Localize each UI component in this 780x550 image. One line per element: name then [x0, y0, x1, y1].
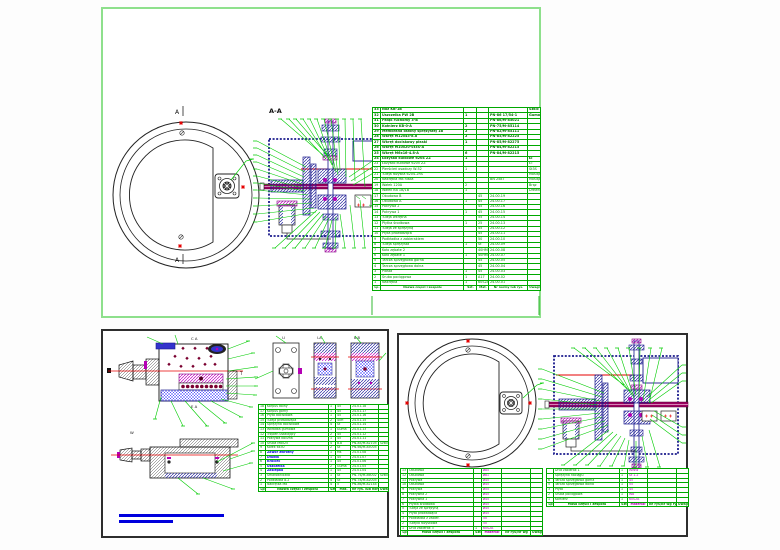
- sheet-bottom-right[interactable]: 13Obudowaø8512Obudowaø8111Pokrywaø4510Ob…: [397, 333, 688, 537]
- plate-view: I-I: [273, 336, 302, 398]
- label-view2: B-B: [354, 336, 361, 340]
- sheet-bottom-left[interactable]: C A T E A: [101, 329, 389, 538]
- revision-bars: [119, 514, 224, 523]
- label-bottom: E A: [191, 404, 198, 409]
- section-title: A-A: [269, 107, 282, 115]
- bottom-left-parts-table: 18Korpus dolny14524.01.1817Korpus górny1…: [258, 404, 388, 492]
- bottom-right-right-table: Drut zabierak 11WWWSprężyna naciągu1St 1…: [546, 468, 688, 507]
- flange-front-view: [405, 339, 543, 467]
- cut-label-top: A: [175, 109, 180, 116]
- label-plate: I-I: [282, 336, 285, 340]
- section-view: [545, 339, 688, 470]
- sheet-top[interactable]: A A A-A: [101, 7, 541, 318]
- label-w: W: [130, 430, 134, 435]
- label-t: T: [239, 371, 243, 376]
- bottom-right-left-table: 13Obudowaø8512Obudowaø8111Pokrywaø4510Ob…: [400, 468, 542, 536]
- side-section-view: W: [111, 430, 238, 478]
- clamp-section-view: C A T E A: [107, 336, 243, 409]
- drawing-canvas: { "colors":{"cad_green":"#00b400","navy"…: [0, 0, 780, 550]
- top-parts-table: 33Nóż KB-1BSzkic32Uszczelka PW 2B1PN-86 …: [372, 107, 541, 291]
- flange-front-view: A A: [113, 106, 259, 268]
- strip-section-2: B-B: [348, 336, 382, 398]
- label-top: C A: [191, 336, 198, 341]
- strip-section-1: I-A: [311, 336, 339, 398]
